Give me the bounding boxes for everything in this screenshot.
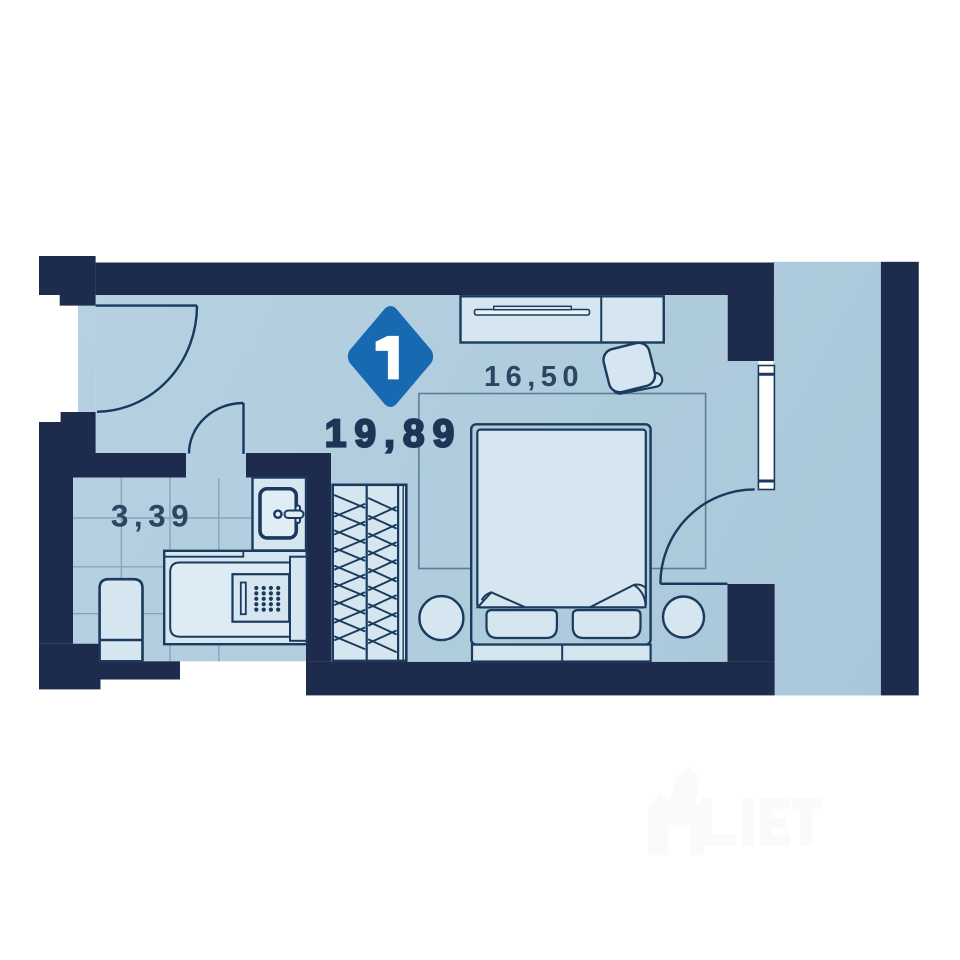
svg-text:3,39: 3,39 (111, 498, 194, 534)
svg-text:19,89: 19,89 (325, 413, 463, 456)
svg-text:16,50: 16,50 (484, 361, 584, 393)
